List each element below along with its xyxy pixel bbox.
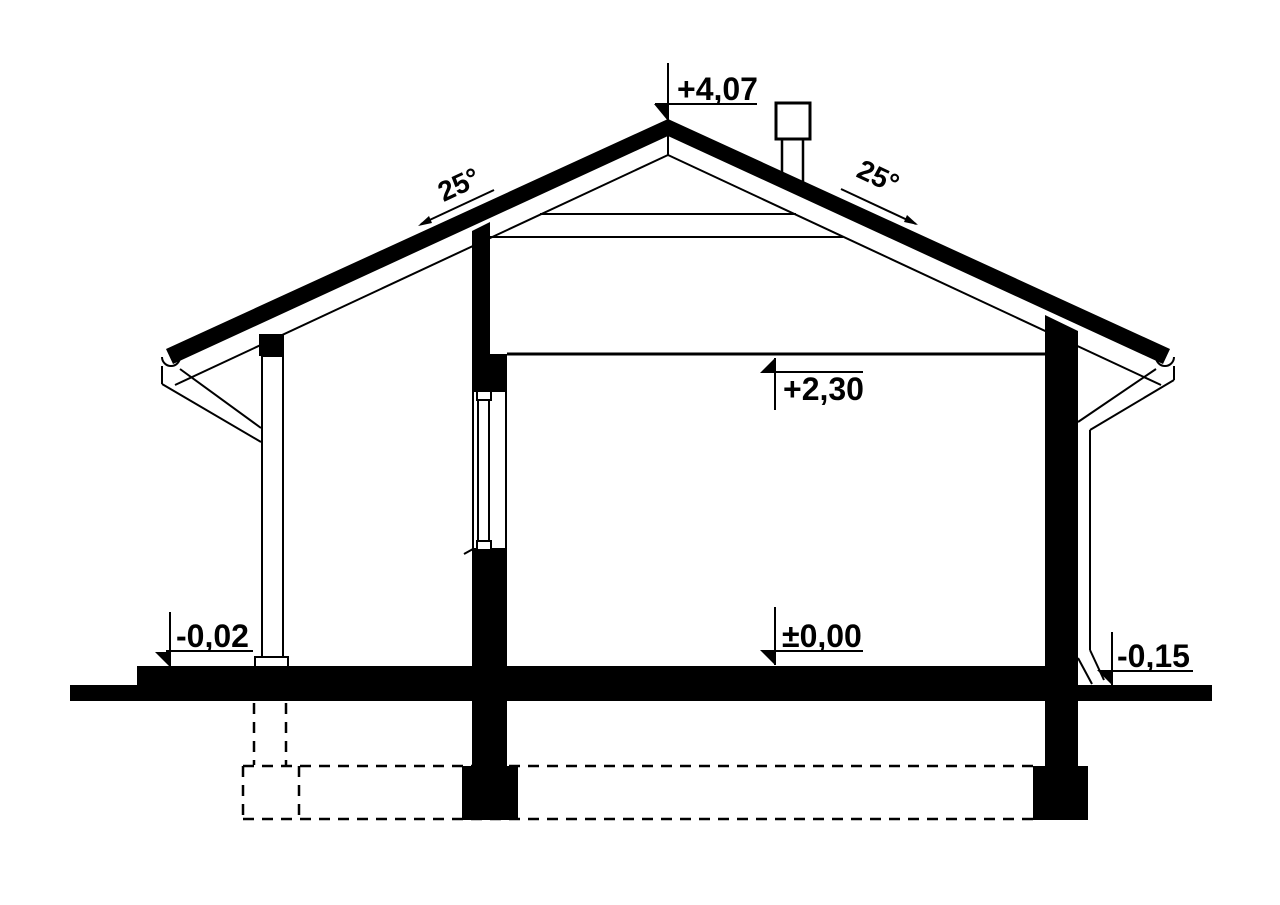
ceiling-elevation-label: +2,30 — [783, 371, 864, 407]
center-foundation-wall — [472, 701, 507, 766]
window-frame-head — [477, 391, 491, 400]
floor-elevation-label: ±0,00 — [782, 618, 862, 654]
ridge-elevation-label: +4,07 — [677, 71, 758, 107]
ground-slab — [70, 666, 1212, 701]
post-cap-beam — [259, 334, 284, 356]
window-frame — [478, 396, 489, 544]
porch-elevation-label: -0,02 — [176, 618, 249, 654]
left-grade-band — [70, 685, 137, 701]
center-wall-below-window — [472, 548, 507, 670]
floor-slab — [137, 666, 1078, 701]
center-footing — [462, 766, 518, 820]
right-grade-band — [1078, 685, 1212, 701]
post-column — [262, 356, 283, 657]
right-footing — [1033, 766, 1088, 820]
right-foundation-wall — [1045, 701, 1078, 766]
window-frame-sill — [477, 541, 491, 550]
chimney-cap — [776, 103, 810, 139]
post-base-plate — [255, 657, 288, 667]
right-exterior-wall — [1045, 315, 1078, 701]
grade-elevation-label: -0,15 — [1117, 638, 1190, 674]
window-lintel — [472, 354, 507, 392]
center-attic-stub-wall — [472, 222, 490, 356]
house-section-drawing: +4,07 +2,30 ±0,00 -0,02 -0,15 25° 25 — [0, 0, 1280, 905]
